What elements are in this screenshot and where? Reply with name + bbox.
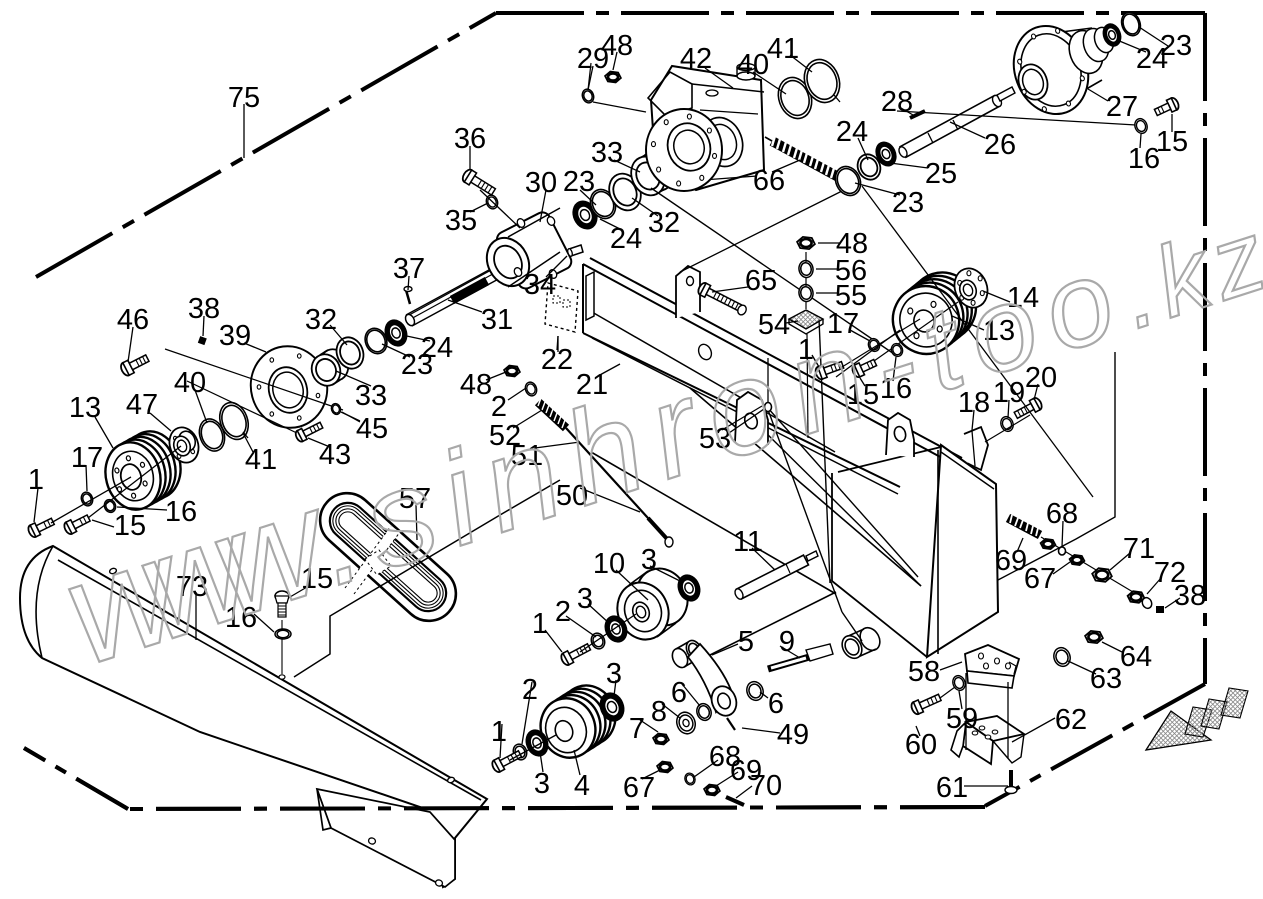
svg-text:67: 67 [623, 772, 655, 804]
svg-text:3: 3 [534, 768, 550, 800]
svg-text:39: 39 [219, 320, 251, 352]
svg-text:1: 1 [28, 464, 44, 496]
svg-text:24: 24 [610, 223, 642, 255]
svg-text:36: 36 [454, 123, 486, 155]
svg-text:3: 3 [606, 658, 622, 690]
svg-text:2: 2 [555, 596, 571, 628]
svg-text:27: 27 [1106, 91, 1138, 123]
svg-text:65: 65 [745, 265, 777, 297]
svg-text:10: 10 [593, 548, 625, 580]
svg-text:34: 34 [524, 269, 556, 301]
svg-text:38: 38 [188, 293, 220, 325]
svg-text:24: 24 [836, 116, 868, 148]
svg-text:6: 6 [671, 677, 687, 709]
svg-text:47: 47 [126, 389, 158, 421]
svg-text:25: 25 [925, 158, 957, 190]
svg-text:48: 48 [601, 30, 633, 62]
svg-text:24: 24 [421, 332, 453, 364]
svg-text:64: 64 [1120, 641, 1152, 673]
svg-text:59: 59 [946, 703, 978, 735]
svg-text:61: 61 [936, 772, 968, 804]
svg-text:11: 11 [733, 526, 763, 558]
svg-text:7: 7 [629, 713, 645, 745]
svg-text:31: 31 [481, 304, 513, 336]
svg-text:35: 35 [445, 205, 477, 237]
svg-text:62: 62 [1055, 704, 1087, 736]
svg-text:13: 13 [69, 392, 101, 424]
svg-text:32: 32 [305, 304, 337, 336]
svg-text:15: 15 [1156, 126, 1188, 158]
svg-text:58: 58 [908, 656, 940, 688]
svg-text:22: 22 [541, 344, 573, 376]
svg-text:23: 23 [1160, 30, 1192, 62]
svg-text:49: 49 [777, 719, 809, 751]
svg-text:33: 33 [591, 137, 623, 169]
svg-text:28: 28 [881, 86, 913, 118]
svg-text:67: 67 [1024, 563, 1056, 595]
svg-text:2: 2 [522, 674, 538, 706]
svg-text:45: 45 [356, 413, 388, 445]
svg-text:6: 6 [768, 688, 784, 720]
svg-text:69: 69 [995, 545, 1027, 577]
svg-text:3: 3 [577, 583, 593, 615]
svg-text:1: 1 [532, 608, 548, 640]
svg-text:3: 3 [641, 544, 657, 576]
svg-text:17: 17 [71, 442, 103, 474]
svg-text:70: 70 [750, 770, 782, 802]
svg-text:30: 30 [525, 167, 557, 199]
svg-text:48: 48 [460, 369, 492, 401]
svg-text:5: 5 [738, 626, 754, 658]
svg-text:75: 75 [228, 82, 260, 114]
svg-text:32: 32 [648, 207, 680, 239]
svg-text:66: 66 [753, 165, 785, 197]
svg-text:1: 1 [491, 716, 507, 748]
svg-text:23: 23 [563, 166, 595, 198]
svg-text:23: 23 [892, 187, 924, 219]
svg-text:33: 33 [355, 380, 387, 412]
svg-text:26: 26 [984, 129, 1016, 161]
svg-text:60: 60 [905, 729, 937, 761]
svg-text:42: 42 [680, 43, 712, 75]
svg-text:46: 46 [117, 304, 149, 336]
svg-text:37: 37 [393, 253, 425, 285]
svg-text:38: 38 [1174, 580, 1206, 612]
svg-text:63: 63 [1090, 663, 1122, 695]
svg-text:71: 71 [1123, 533, 1155, 565]
svg-text:16: 16 [1128, 143, 1160, 175]
svg-text:40: 40 [737, 49, 769, 81]
svg-text:4: 4 [574, 770, 590, 802]
svg-text:41: 41 [767, 33, 799, 65]
svg-text:9: 9 [779, 626, 795, 658]
svg-text:8: 8 [651, 696, 667, 728]
svg-text:40: 40 [174, 367, 206, 399]
svg-text:68: 68 [1046, 498, 1078, 530]
